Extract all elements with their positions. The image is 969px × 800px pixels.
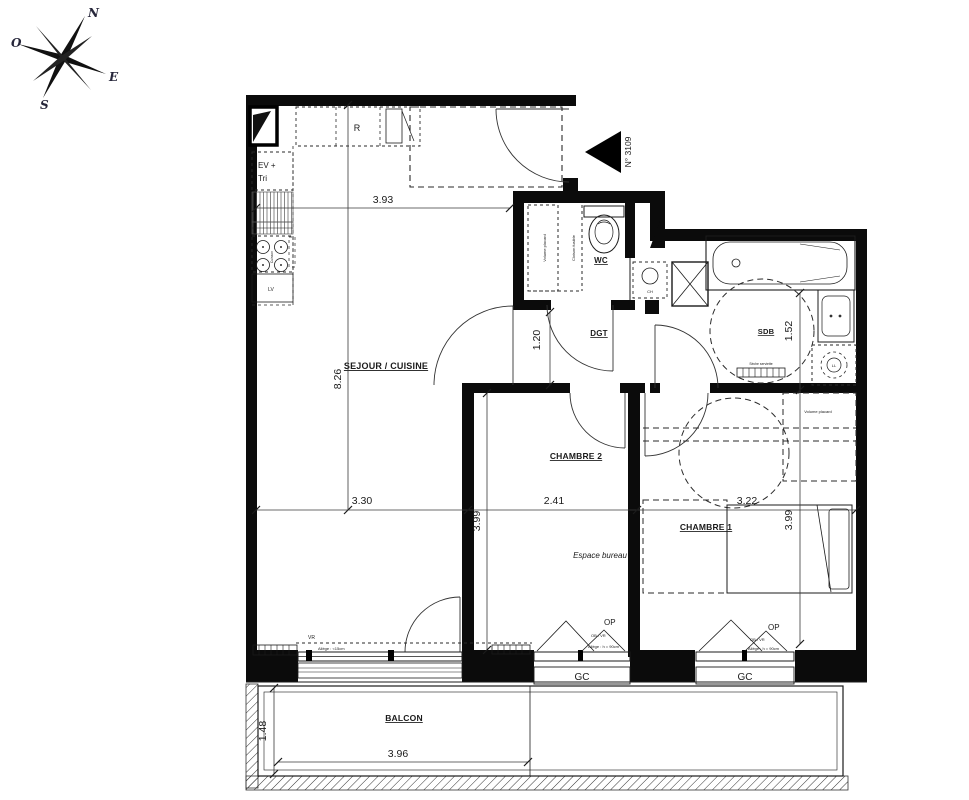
dim-balcon-height: 1.48 [257,721,269,742]
floor-plan-drawing: N O E S [0,0,969,800]
chambre1-label: CHAMBRE 1 [680,522,732,532]
sdb-label: SDB [758,327,775,336]
ch1-closet-zone [783,393,856,481]
towel-dryer-icon: Sèche serviette [737,362,785,377]
entrance-arrow-icon [585,131,621,173]
washing-machine-label: LL [832,363,837,368]
gc-ch1-label: GC [738,672,753,683]
sink-label-1: EV + [258,161,276,170]
washing-machine-icon: LL [812,345,856,385]
dim-chambre1-height: 3.99 [783,510,795,531]
espace-bureau-label: Espace bureau [573,551,627,560]
interior-walls [462,203,867,657]
ch1-sill-label: Allège : h = 90cm [748,646,780,651]
toilet-icon [584,206,624,253]
dgt-label: DGT [590,329,608,338]
bathroom-area: SDB LL Sèche serviette [706,236,856,385]
water-heater-label: CH [647,289,653,294]
water-heater-icon: CH [633,262,667,298]
balcony-railing [258,686,843,776]
technical-shaft-icon [672,262,708,306]
gc-ch2-label: GC [575,672,590,683]
wc-partition-label: Cloison fusible [571,234,576,261]
vanity-icon [818,290,854,342]
towel-dryer-label: Sèche serviette [749,362,772,366]
turning-circle-ch1 [679,398,789,508]
dim-chambre2-height: 3.99 [471,511,483,532]
balcony: BALCON [246,682,867,790]
wc-label: WC [594,256,608,265]
ch1-wardrobe-zone [643,500,727,593]
sink-zone [252,152,293,190]
compass-west-label: O [11,36,22,50]
ch2-op-label: OP [604,618,616,627]
oven-icon [386,109,402,143]
sejour-sill-label: Allège : <15cm [318,646,345,651]
drainer-icon [252,192,293,222]
compass-east-label: E [108,70,119,84]
dim-sejour-width: 3.30 [352,495,373,507]
ch1-closet-label: Volume placard [804,409,832,414]
compass-rose: N O E S [11,6,119,112]
dim-chambre2-width: 2.41 [544,495,565,507]
floor-plan-page: N O E S [0,0,969,800]
dim-dgt-width: 1.20 [531,330,543,351]
compass-south-label: S [40,98,49,112]
entry-zone: N° 3109 [410,107,633,187]
dim-entry-width: 3.93 [373,194,394,206]
wc-area: Volume placard Cloison fusible WC DGT CH [528,205,708,338]
dim-balcon-width: 3.96 [388,748,409,760]
wc-closet-label: Volume placard [542,234,547,262]
ch1-type-label: OB / VR [750,637,765,642]
sejour-label: SEJOUR / CUISINE [344,361,428,371]
ch1-op-label: OP [768,623,780,632]
sink-label-2: Tri [258,174,267,183]
compass-north-label: N [87,6,100,20]
dishwasher-label: LV [268,287,274,293]
balcon-label: BALCON [385,713,423,723]
fridge-label: R [354,123,361,133]
chambre2-label: CHAMBRE 2 [550,451,602,461]
dim-sdb-width: 1.52 [783,321,795,342]
dim-chambre1-width: 3.22 [737,495,758,507]
hob-label: Cuisson [270,251,274,263]
hob-icon: Cuisson [252,236,295,272]
ch2-sill-label: Allège : h = 90cm [588,644,620,649]
vr-label: VR [308,635,315,641]
dim-sejour-height: 8.26 [332,369,344,390]
doors [405,109,718,652]
unit-number-label: N° 3109 [623,136,633,167]
bedrooms: CHAMBRE 2 Espace bureau CHAMBRE 1 Volume… [550,393,856,593]
ch2-type-label: OB / VR [591,633,606,638]
kitchen-fittings: R EV + Tri Cuisson LV [250,107,420,305]
